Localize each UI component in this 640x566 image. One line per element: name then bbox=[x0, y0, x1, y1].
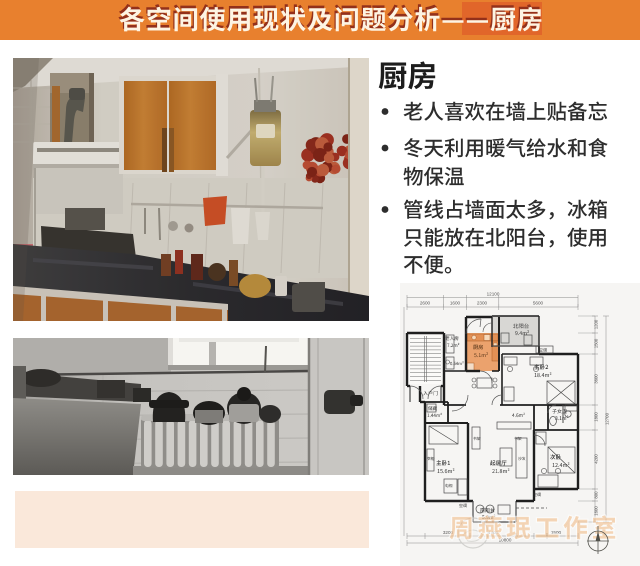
svg-text:2300: 2300 bbox=[477, 301, 488, 306]
svg-text:1600: 1600 bbox=[594, 506, 599, 516]
svg-text:1500: 1500 bbox=[594, 338, 599, 348]
svg-text:3600: 3600 bbox=[594, 374, 599, 384]
svg-text:2600: 2600 bbox=[420, 301, 431, 306]
svg-text:800: 800 bbox=[594, 491, 599, 499]
svg-text:4200: 4200 bbox=[594, 454, 599, 464]
svg-text:1600: 1600 bbox=[450, 301, 461, 306]
svg-text:12100: 12100 bbox=[487, 292, 500, 297]
svg-text:1800: 1800 bbox=[594, 412, 599, 422]
svg-text:1200: 1200 bbox=[594, 319, 599, 329]
svg-text:5600: 5600 bbox=[533, 301, 544, 306]
svg-text:12700: 12700 bbox=[605, 412, 610, 425]
